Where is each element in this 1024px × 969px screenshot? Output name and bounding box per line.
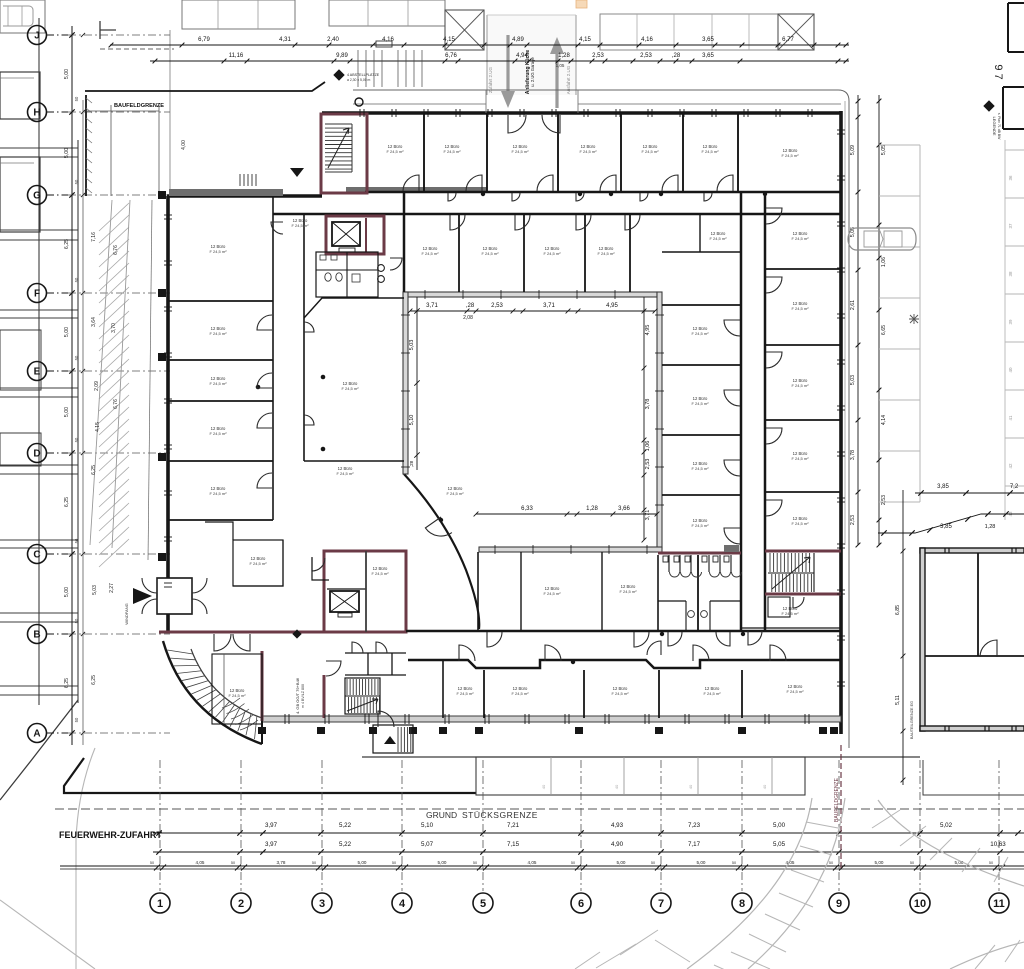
svg-text:2,53: 2,53: [850, 515, 856, 525]
svg-text:40: 40: [541, 784, 546, 789]
svg-text:1,28: 1,28: [586, 506, 598, 512]
svg-text:,28: ,28: [466, 303, 475, 309]
svg-text:6,25: 6,25: [91, 465, 97, 475]
svg-text:LEGENDE: LEGENDE: [992, 116, 997, 135]
svg-text:38: 38: [1008, 271, 1013, 277]
svg-text:4,90: 4,90: [611, 841, 624, 848]
svg-text:2,27: 2,27: [109, 583, 115, 593]
svg-text:10: 10: [914, 898, 926, 910]
svg-text:F 24,5 m²: F 24,5 m²: [579, 149, 597, 154]
svg-text:7: 7: [658, 898, 664, 910]
svg-text:F 24,5 m²: F 24,5 m²: [791, 521, 809, 526]
svg-text:,28: ,28: [409, 460, 414, 467]
svg-text:3,97: 3,97: [265, 841, 278, 848]
svg-text:GRUND: GRUND: [426, 810, 457, 820]
svg-text:6,76: 6,76: [445, 53, 457, 59]
svg-text:4,89: 4,89: [512, 37, 524, 43]
svg-text:F 24,5 m²: F 24,5 m²: [511, 691, 529, 696]
svg-text:5,00: 5,00: [64, 69, 70, 79]
svg-text:6,33: 6,33: [521, 506, 533, 512]
svg-text:5: 5: [480, 898, 486, 910]
svg-text:F 24,5 m²: F 24,5 m²: [421, 251, 439, 256]
svg-text:37: 37: [1008, 223, 1013, 229]
svg-text:3,78: 3,78: [277, 860, 286, 865]
svg-text:5,00: 5,00: [64, 407, 70, 417]
svg-text:2: 2: [238, 898, 244, 910]
svg-text:5,07: 5,07: [421, 841, 434, 848]
svg-text:F 24,5 m²: F 24,5 m²: [443, 149, 461, 154]
svg-text:5,00: 5,00: [697, 860, 706, 865]
svg-text:6,25: 6,25: [91, 675, 97, 685]
svg-text:F: F: [34, 289, 40, 300]
svg-text:9,89: 9,89: [336, 53, 348, 59]
svg-text:BAUFELDGRENZE: BAUFELDGRENZE: [834, 777, 840, 822]
svg-text:50: 50: [829, 861, 833, 865]
svg-text:Zufahrt 2.UG: Zufahrt 2.UG: [488, 66, 493, 93]
svg-text:F 24,5 m²: F 24,5 m²: [456, 691, 474, 696]
svg-text:F 24,5 m²: F 24,5 m²: [209, 249, 227, 254]
svg-text:50: 50: [74, 277, 79, 282]
svg-text:6,65: 6,65: [881, 325, 887, 335]
svg-text:2,53: 2,53: [640, 53, 652, 59]
svg-text:5,10: 5,10: [409, 415, 415, 426]
svg-text:1,06: 1,06: [645, 441, 651, 452]
svg-text:6,79: 6,79: [198, 37, 210, 43]
svg-text:4,95: 4,95: [645, 325, 651, 336]
svg-text:B: B: [33, 630, 40, 641]
svg-text:F 24,5 m²: F 24,5 m²: [691, 466, 709, 471]
svg-text:2,08: 2,08: [463, 315, 473, 321]
svg-text:F 24,5 m²: F 24,5 m²: [791, 236, 809, 241]
svg-text:4,95: 4,95: [606, 303, 618, 309]
svg-text:50: 50: [651, 861, 655, 865]
svg-text:5,03: 5,03: [92, 585, 98, 595]
svg-text:9 7: 9 7: [992, 64, 1004, 79]
svg-text:5,00: 5,00: [64, 148, 70, 158]
svg-text:F 24,5 m²: F 24,5 m²: [209, 431, 227, 436]
svg-text:10,63: 10,63: [990, 841, 1006, 848]
svg-text:6: 6: [578, 898, 584, 910]
svg-text:50: 50: [74, 437, 79, 442]
svg-text:4,16: 4,16: [382, 37, 394, 43]
svg-text:50: 50: [571, 861, 575, 865]
svg-text:BAUTEILGRENZE EG: BAUTEILGRENZE EG: [910, 701, 914, 739]
svg-text:7,17: 7,17: [688, 841, 701, 848]
svg-text:50: 50: [74, 179, 79, 184]
svg-text:F 24,5 m²: F 24,5 m²: [249, 561, 267, 566]
svg-text:7,23: 7,23: [688, 822, 701, 829]
svg-text:3,85: 3,85: [937, 484, 949, 490]
svg-text:F 24,5 m²: F 24,5 m²: [291, 223, 309, 228]
svg-text:F 24,5 m²: F 24,5 m²: [481, 251, 499, 256]
svg-text:F 24,5 m²: F 24,5 m²: [228, 693, 246, 698]
svg-text:3,65: 3,65: [702, 53, 714, 59]
svg-text:2,53: 2,53: [881, 495, 887, 505]
svg-text:3,71: 3,71: [543, 303, 555, 309]
svg-text:1,28: 1,28: [558, 53, 570, 59]
svg-text:8: 8: [739, 898, 745, 910]
svg-text:A: A: [33, 729, 40, 740]
svg-text:50: 50: [74, 355, 79, 360]
svg-text:F 24,5 m²: F 24,5 m²: [791, 306, 809, 311]
svg-text:5,02: 5,02: [940, 822, 953, 829]
svg-text:H: H: [33, 108, 40, 119]
svg-text:6,77: 6,77: [782, 37, 794, 43]
svg-text:6,25: 6,25: [64, 239, 70, 249]
svg-text:4,16: 4,16: [641, 37, 653, 43]
svg-text:a 2,30 x 5,00 m: a 2,30 x 5,00 m: [347, 78, 371, 82]
svg-text:F 24,5 m²: F 24,5 m²: [791, 456, 809, 461]
svg-text:50: 50: [989, 861, 993, 865]
svg-text:40: 40: [614, 784, 619, 789]
svg-text:4,05: 4,05: [528, 860, 537, 865]
svg-text:F 24,5 m²: F 24,5 m²: [209, 491, 227, 496]
svg-text:1: 1: [157, 898, 163, 910]
svg-text:7,2: 7,2: [1010, 484, 1019, 490]
svg-text:4,05: 4,05: [196, 860, 205, 865]
svg-text:4: 4: [399, 898, 406, 910]
svg-text:6,76: 6,76: [113, 245, 119, 255]
svg-text:5,05: 5,05: [881, 145, 887, 155]
svg-text:3,78: 3,78: [645, 399, 651, 410]
svg-text:F 24,5 m²: F 24,5 m²: [781, 611, 799, 616]
svg-text:6,76: 6,76: [113, 399, 119, 409]
svg-text:WINDFANG: WINDFANG: [124, 603, 129, 625]
svg-text:3,97: 3,97: [265, 822, 278, 829]
svg-text:3,71: 3,71: [426, 303, 438, 309]
svg-text:40: 40: [1008, 367, 1013, 373]
svg-text:3,64: 3,64: [91, 317, 97, 327]
svg-text:11,16: 11,16: [229, 53, 244, 59]
svg-text:2,53: 2,53: [491, 303, 503, 309]
svg-text:50: 50: [910, 861, 914, 865]
svg-text:1,05: 1,05: [556, 63, 565, 68]
svg-text:5,00: 5,00: [64, 587, 70, 597]
svg-text:3,78: 3,78: [850, 450, 856, 460]
svg-text:G: G: [33, 191, 41, 202]
svg-text:3,65: 3,65: [702, 37, 714, 43]
svg-text:2,61: 2,61: [850, 300, 856, 310]
svg-text:5,00: 5,00: [617, 860, 626, 865]
svg-text:50: 50: [392, 861, 396, 865]
svg-text:m 4 BV/LZ 800: m 4 BV/LZ 800: [301, 684, 305, 708]
svg-text:4,15: 4,15: [443, 37, 455, 43]
svg-text:5,03: 5,03: [850, 375, 856, 385]
svg-text:J: J: [34, 31, 40, 42]
svg-text:4,00: 4,00: [181, 140, 187, 150]
svg-text:6,25: 6,25: [64, 497, 70, 507]
svg-text:BAUFELDGRENZE: BAUFELDGRENZE: [114, 103, 164, 109]
svg-text:C: C: [33, 550, 40, 561]
svg-text:4,93: 4,93: [611, 822, 624, 829]
svg-text:STÜCKSGRENZE: STÜCKSGRENZE: [462, 810, 538, 820]
svg-text:F 24,5 m²: F 24,5 m²: [691, 401, 709, 406]
svg-text:5,11: 5,11: [895, 695, 901, 705]
svg-text:4,15: 4,15: [579, 37, 591, 43]
svg-text:,28: ,28: [672, 53, 681, 59]
svg-text:F 24,5 m²: F 24,5 m²: [209, 381, 227, 386]
svg-text:F 24,5 m²: F 24,5 m²: [641, 149, 659, 154]
svg-text:39: 39: [1008, 319, 1013, 325]
svg-text:F 24,5 m²: F 24,5 m²: [386, 149, 404, 154]
svg-text:42: 42: [1008, 463, 1013, 469]
svg-text:50: 50: [74, 538, 79, 543]
svg-text:50: 50: [231, 861, 235, 865]
svg-text:50: 50: [312, 861, 316, 865]
svg-text:6,25: 6,25: [64, 678, 70, 688]
svg-text:5,00: 5,00: [875, 860, 884, 865]
svg-text:F 24,5 m²: F 24,5 m²: [611, 691, 629, 696]
svg-text:5,22: 5,22: [339, 822, 352, 829]
svg-text:F 24,5 m²: F 24,5 m²: [791, 383, 809, 388]
svg-text:2,53: 2,53: [592, 53, 604, 59]
svg-text:5,03: 5,03: [409, 340, 415, 351]
svg-text:5,09: 5,09: [850, 145, 856, 155]
svg-text:7,15: 7,15: [507, 841, 520, 848]
svg-text:2,53: 2,53: [645, 459, 651, 470]
svg-text:3: 3: [319, 898, 325, 910]
svg-text:5,00: 5,00: [358, 860, 367, 865]
svg-text:4,15: 4,15: [95, 422, 101, 432]
svg-text:F 24,5 m²: F 24,5 m²: [786, 689, 804, 694]
svg-text:4,94: 4,94: [516, 53, 528, 59]
svg-text:5,00: 5,00: [64, 327, 70, 337]
svg-text:5,00: 5,00: [773, 822, 786, 829]
svg-text:F 24,5 m²: F 24,5 m²: [446, 491, 464, 496]
svg-text:50: 50: [150, 861, 154, 865]
svg-text:41: 41: [1008, 415, 1013, 421]
svg-text:36: 36: [1008, 175, 1013, 181]
svg-text:F 24,5 m²: F 24,5 m²: [597, 251, 615, 256]
svg-text:50: 50: [74, 96, 79, 101]
svg-text:9: 9: [836, 898, 842, 910]
svg-text:40: 40: [762, 784, 767, 789]
svg-text:F 24,5 m²: F 24,5 m²: [691, 523, 709, 528]
svg-text:s. Plan 71 dB BW: s. Plan 71 dB BW: [997, 113, 1001, 140]
svg-text:F 24,5 m²: F 24,5 m²: [691, 331, 709, 336]
svg-text:2,40: 2,40: [327, 37, 339, 43]
svg-text:50: 50: [74, 618, 79, 623]
svg-text:5,00: 5,00: [438, 860, 447, 865]
svg-text:F 24,5 m²: F 24,5 m²: [619, 589, 637, 594]
svg-text:7,16: 7,16: [91, 232, 97, 242]
svg-text:FEUERWEHR-ZUFAHRT: FEUERWEHR-ZUFAHRT: [59, 830, 162, 840]
svg-text:4 ABSTELLPLÄTZE: 4 ABSTELLPLÄTZE: [347, 73, 380, 77]
svg-text:F 24,5 m²: F 24,5 m²: [703, 691, 721, 696]
svg-text:7,21: 7,21: [507, 822, 520, 829]
svg-text:F 24,5 m²: F 24,5 m²: [336, 471, 354, 476]
svg-text:F 24,5 m²: F 24,5 m²: [543, 591, 561, 596]
svg-text:40: 40: [688, 784, 693, 789]
svg-text:4. GB OG/T 79+B46: 4. GB OG/T 79+B46: [295, 677, 300, 714]
svg-text:1,06: 1,06: [881, 257, 887, 267]
svg-text:3,70: 3,70: [111, 323, 117, 333]
svg-text:3,71: 3,71: [645, 510, 651, 521]
svg-text:E: E: [34, 367, 41, 378]
svg-text:F 24,5 m²: F 24,5 m²: [511, 149, 529, 154]
svg-text:50: 50: [732, 861, 736, 865]
svg-text:2,09: 2,09: [94, 381, 100, 391]
svg-text:F 24,5 m²: F 24,5 m²: [781, 153, 799, 158]
svg-text:4,14: 4,14: [881, 415, 887, 425]
svg-text:4,31: 4,31: [279, 37, 291, 43]
svg-text:50: 50: [74, 717, 79, 722]
svg-text:1,28: 1,28: [985, 524, 996, 530]
svg-text:3,85: 3,85: [940, 524, 952, 530]
svg-text:D: D: [33, 449, 40, 460]
svg-text:F 24,5 m²: F 24,5 m²: [371, 571, 389, 576]
svg-text:F 24,5 m²: F 24,5 m²: [209, 331, 227, 336]
svg-text:3,66: 3,66: [618, 506, 630, 512]
svg-text:F 24,5 m²: F 24,5 m²: [543, 251, 561, 256]
svg-text:6,85: 6,85: [895, 605, 901, 615]
svg-text:50: 50: [473, 861, 477, 865]
svg-text:5,10: 5,10: [421, 822, 434, 829]
svg-text:11: 11: [993, 898, 1005, 910]
svg-text:F 24,5 m²: F 24,5 m²: [709, 236, 727, 241]
svg-text:5,05: 5,05: [773, 841, 786, 848]
svg-text:5,22: 5,22: [339, 841, 352, 848]
svg-text:F 24,5 m²: F 24,5 m²: [701, 149, 719, 154]
svg-text:F 24,5 m²: F 24,5 m²: [341, 386, 359, 391]
